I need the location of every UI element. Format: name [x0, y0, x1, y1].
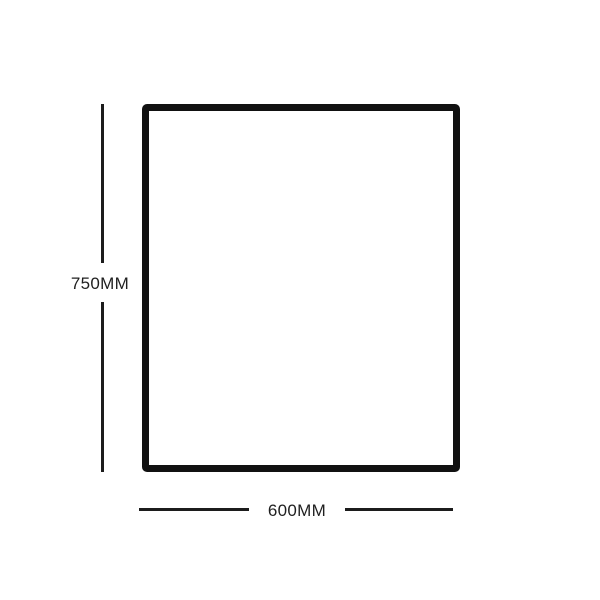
height-dimension-label: 750MM — [55, 274, 145, 294]
height-dimension-line-upper-segment — [101, 104, 104, 263]
width-dimension-label: 600MM — [247, 501, 347, 521]
width-dimension-line-right-segment — [345, 508, 453, 511]
height-dimension-line-lower-segment — [101, 302, 104, 472]
panel-outline-rectangle — [142, 104, 460, 472]
dimension-diagram: 750MM 600MM — [0, 0, 600, 600]
width-dimension-line-left-segment — [139, 508, 249, 511]
